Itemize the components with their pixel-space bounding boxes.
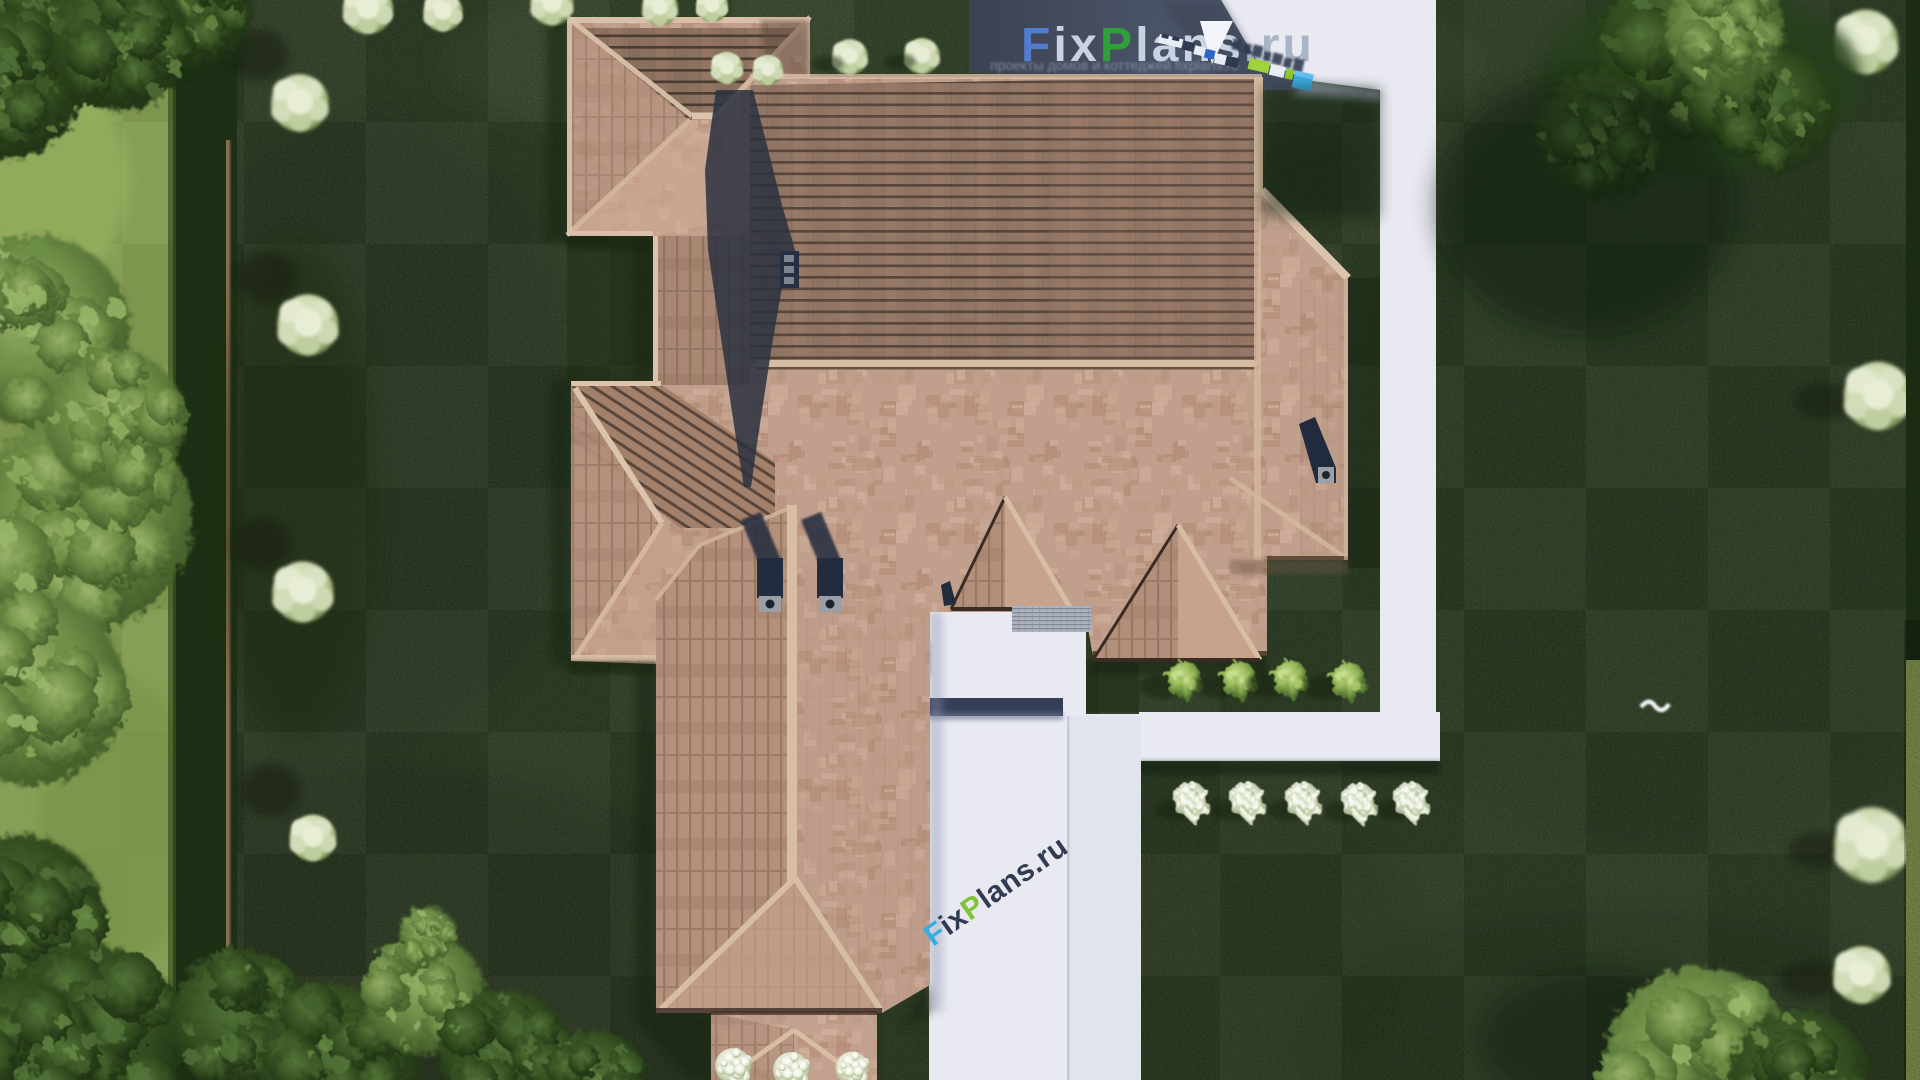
svg-text:проекты домов и коттеджей fix: проекты домов и коттеджей fixplans.ru <box>990 57 1239 73</box>
